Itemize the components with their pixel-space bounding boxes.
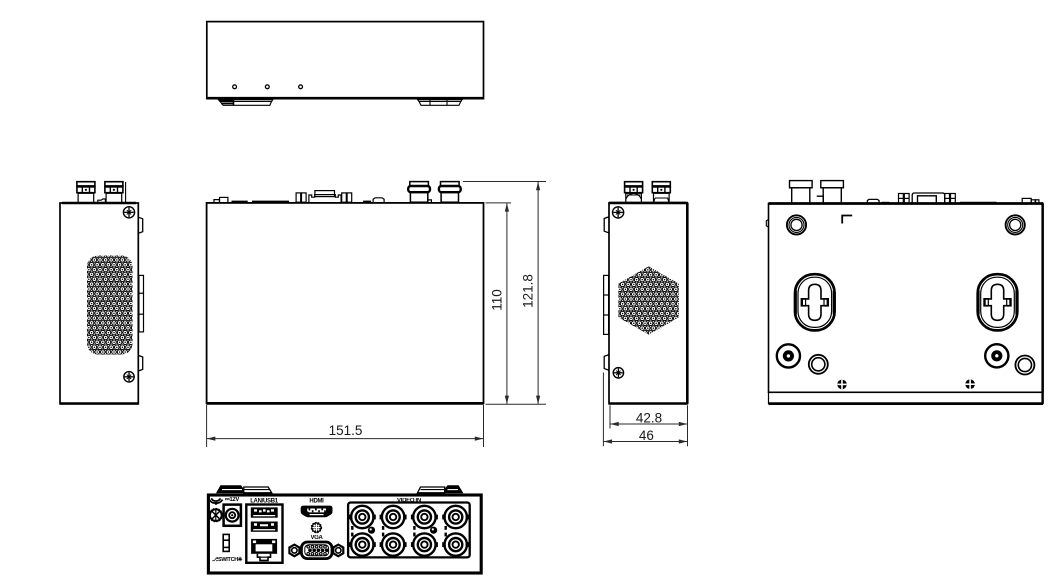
svg-text:110: 110 xyxy=(490,289,505,311)
svg-text:151.5: 151.5 xyxy=(329,423,363,438)
svg-text:⎇SWITCH⎈: ⎇SWITCH⎈ xyxy=(212,556,243,563)
svg-text:⎓12V: ⎓12V xyxy=(225,497,240,503)
svg-text:121.8: 121.8 xyxy=(520,274,535,308)
svg-text:VGA: VGA xyxy=(310,535,323,541)
svg-text:46: 46 xyxy=(639,428,654,443)
svg-text:HDMI: HDMI xyxy=(309,499,324,505)
svg-text:42.8: 42.8 xyxy=(636,411,662,426)
